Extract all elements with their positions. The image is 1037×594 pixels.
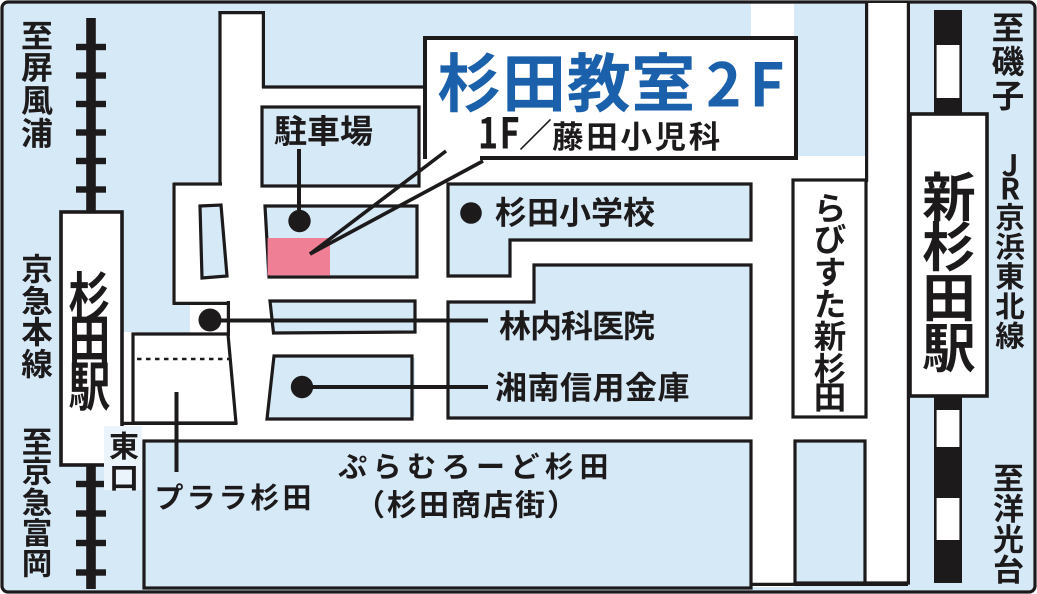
svg-text:浦: 浦 (21, 109, 53, 155)
svg-text:駅: 駅 (69, 344, 111, 422)
svg-text:線: 線 (995, 313, 1025, 355)
svg-text:口: 口 (109, 454, 139, 498)
svg-text:プララ杉田: プララ杉田 (155, 475, 315, 517)
svg-text:／: ／ (519, 109, 552, 157)
svg-text:（杉田商店街）: （杉田商店街） (355, 481, 579, 525)
svg-text:岡: 岡 (22, 540, 53, 584)
svg-text:線: 線 (21, 340, 53, 386)
svg-text:湘南信用金庫: 湘南信用金庫 (495, 363, 690, 409)
svg-text:杉田小学校: 杉田小学校 (495, 188, 655, 234)
svg-text:田: 田 (814, 372, 847, 419)
svg-text:子: 子 (992, 71, 1025, 118)
svg-text:林内科医院: 林内科医院 (499, 302, 655, 348)
svg-text:1F: 1F (478, 100, 521, 162)
svg-text:藤田小児科: 藤田小児科 (552, 112, 723, 158)
svg-text:駐車場: 駐車場 (274, 105, 373, 153)
svg-text:台: 台 (993, 545, 1024, 590)
svg-text:駅: 駅 (922, 307, 976, 384)
